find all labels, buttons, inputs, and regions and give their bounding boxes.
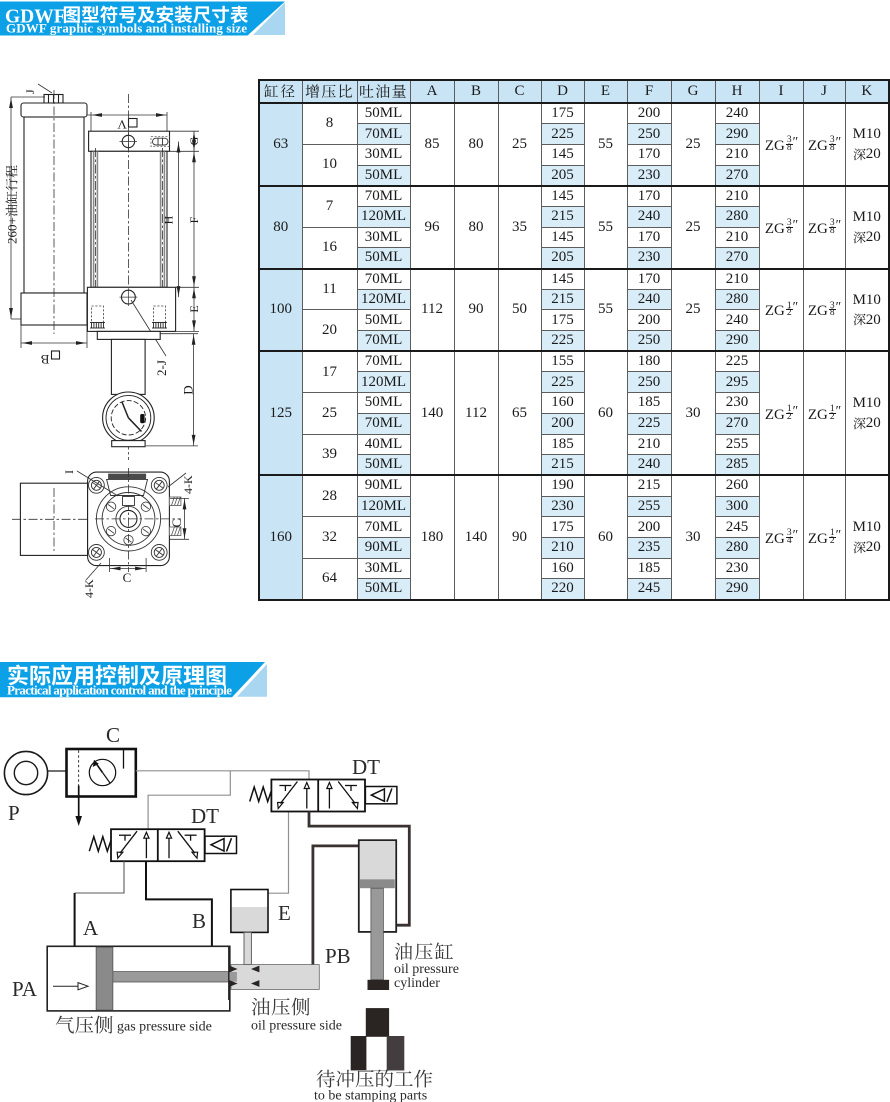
- svg-text:2-J: 2-J: [154, 360, 169, 376]
- svg-text:oil pressure side: oil pressure side: [251, 1019, 342, 1034]
- svg-text:B: B: [40, 352, 49, 367]
- svg-text:I: I: [62, 470, 76, 474]
- svg-text:gas pressure side: gas pressure side: [117, 1020, 212, 1035]
- svg-text:GDWF graphic symbols and insta: GDWF graphic symbols and installing size: [6, 21, 247, 36]
- svg-text:P: P: [8, 801, 20, 825]
- svg-text:4-K: 4-K: [181, 475, 195, 494]
- svg-text:DT: DT: [352, 755, 380, 779]
- svg-text:C: C: [169, 519, 184, 528]
- svg-text:260+: 260+: [5, 217, 20, 244]
- svg-text:E: E: [278, 901, 291, 925]
- svg-text:C: C: [106, 723, 120, 747]
- svg-text:PA: PA: [12, 977, 38, 1001]
- svg-text:A: A: [83, 916, 99, 940]
- svg-text:to be stamping parts: to be stamping parts: [314, 1089, 427, 1102]
- svg-text:PB: PB: [325, 944, 351, 968]
- svg-text:F: F: [187, 216, 201, 223]
- svg-text:4-K: 4-K: [82, 579, 96, 598]
- svg-text:E: E: [187, 305, 201, 312]
- svg-text:D: D: [181, 385, 196, 394]
- svg-text:V: V: [117, 117, 127, 132]
- svg-text:J: J: [23, 89, 37, 94]
- svg-text:C: C: [123, 570, 132, 585]
- svg-text:oil pressure: oil pressure: [394, 962, 459, 977]
- svg-text:H: H: [162, 215, 176, 224]
- svg-text:B: B: [192, 909, 206, 933]
- svg-text:DT: DT: [191, 804, 219, 828]
- svg-text:cylinder: cylinder: [394, 976, 440, 991]
- svg-text:G: G: [187, 136, 201, 145]
